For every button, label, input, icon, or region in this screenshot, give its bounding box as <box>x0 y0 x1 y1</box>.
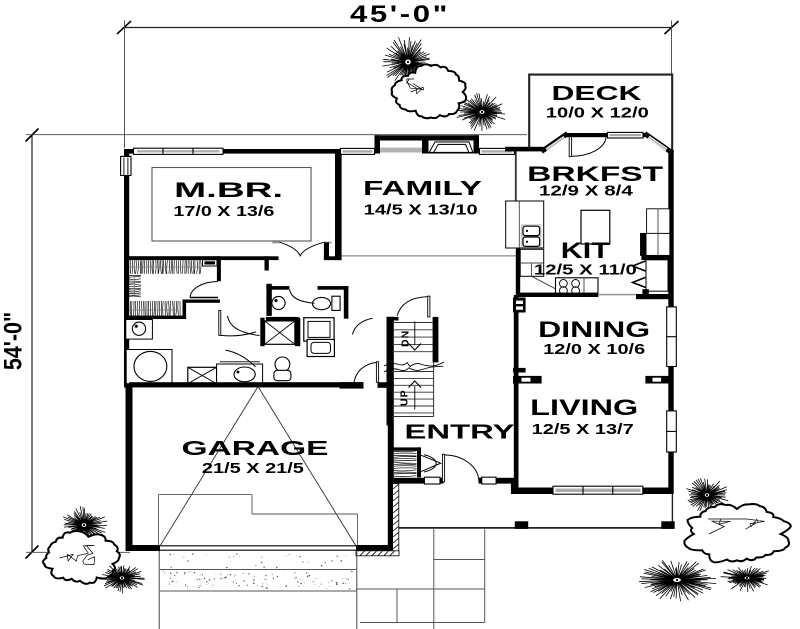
svg-text:10/0 X 12/0: 10/0 X 12/0 <box>546 105 649 122</box>
svg-text:54'-0": 54'-0" <box>0 312 27 370</box>
svg-text:45'-0": 45'-0" <box>350 1 450 28</box>
svg-text:12/9 X 8/4: 12/9 X 8/4 <box>539 182 634 199</box>
svg-text:17/0 X 13/6: 17/0 X 13/6 <box>173 203 274 220</box>
svg-text:UP: UP <box>399 389 411 406</box>
svg-text:FAMILY: FAMILY <box>363 178 483 200</box>
svg-text:M.BR.: M.BR. <box>174 178 283 202</box>
svg-text:DECK: DECK <box>552 83 643 105</box>
svg-text:12/0 X 10/6: 12/0 X 10/6 <box>543 341 645 358</box>
svg-text:21/5 X 21/5: 21/5 X 21/5 <box>202 460 304 477</box>
svg-text:DINING: DINING <box>538 317 650 342</box>
svg-text:KIT: KIT <box>561 238 611 263</box>
svg-text:12/5 X 13/7: 12/5 X 13/7 <box>532 421 634 438</box>
svg-text:LIVING: LIVING <box>530 395 638 420</box>
svg-text:12/5 X 11/0: 12/5 X 11/0 <box>534 262 637 279</box>
svg-text:GARAGE: GARAGE <box>182 437 329 460</box>
svg-text:14/5 X 13/10: 14/5 X 13/10 <box>364 202 478 219</box>
svg-text:ENTRY: ENTRY <box>405 422 516 444</box>
